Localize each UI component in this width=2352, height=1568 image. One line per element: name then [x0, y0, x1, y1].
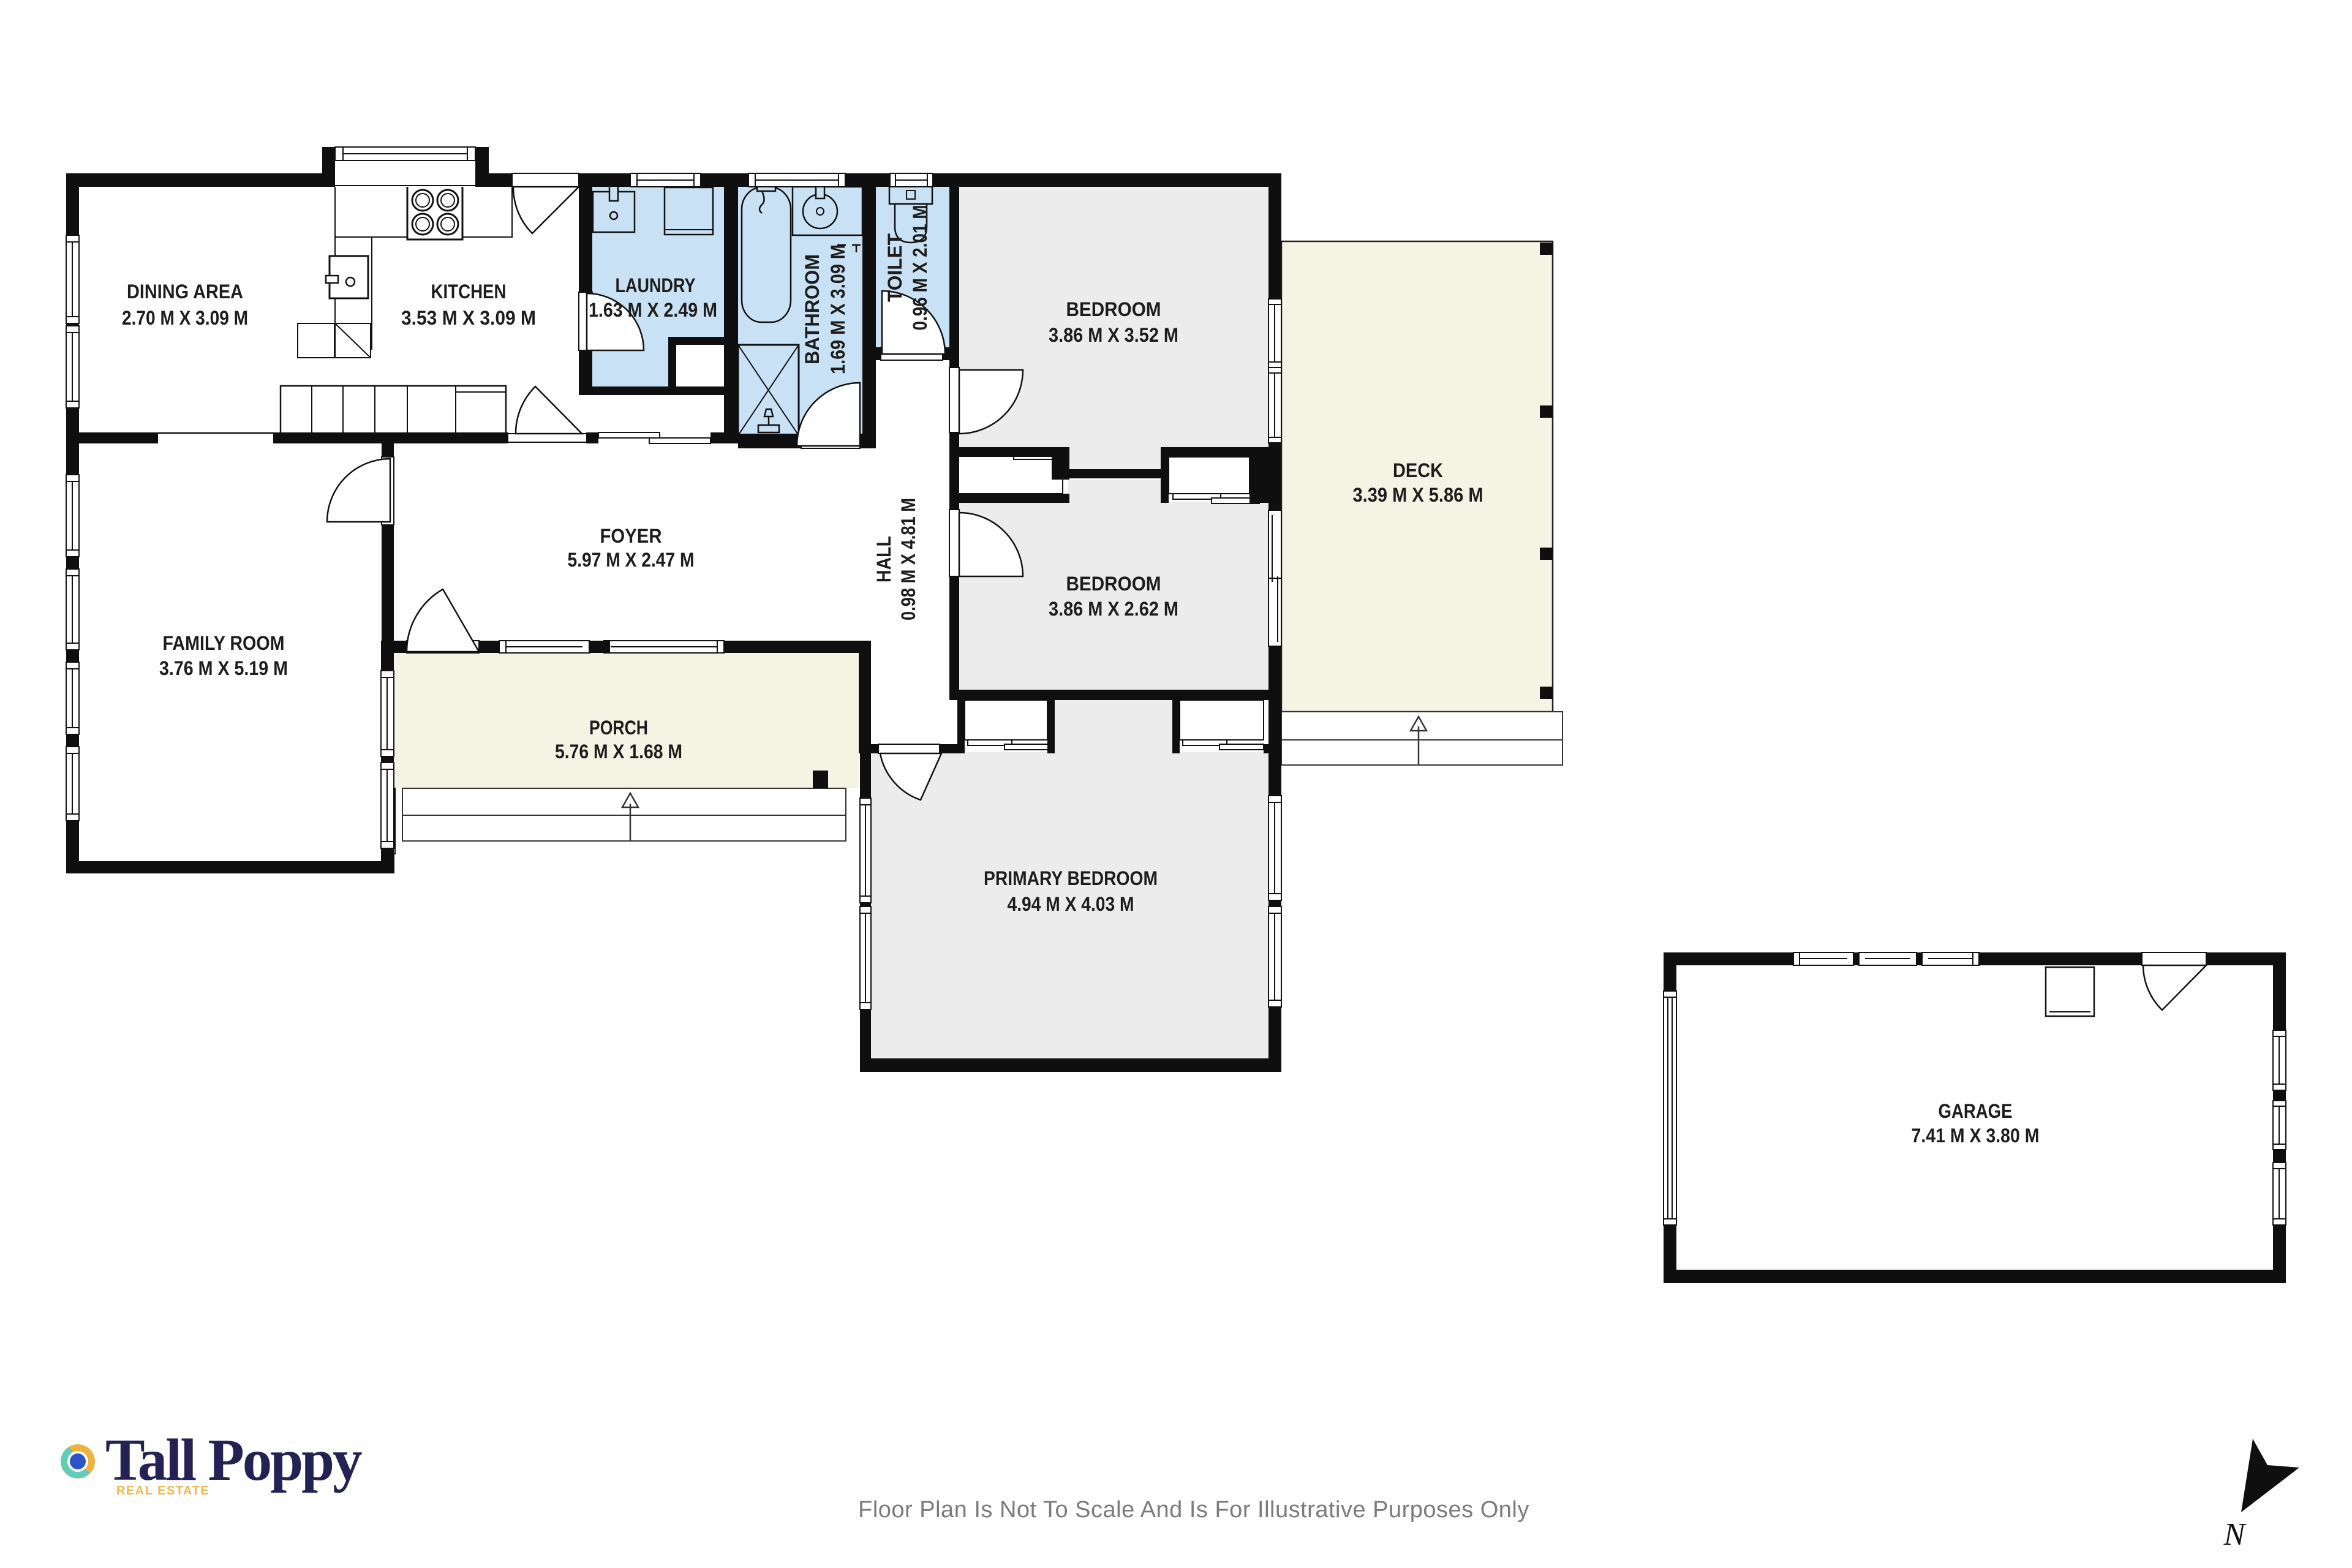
svg-text:HALL: HALL	[873, 536, 895, 582]
svg-text:BEDROOM: BEDROOM	[1066, 573, 1161, 595]
svg-text:N: N	[2223, 1517, 2247, 1552]
svg-text:BATHROOM: BATHROOM	[801, 254, 823, 364]
svg-text:5.97 M X 2.47 M: 5.97 M X 2.47 M	[568, 549, 695, 571]
svg-text:GARAGE: GARAGE	[1939, 1100, 2013, 1122]
svg-text:3.86 M X 3.52 M: 3.86 M X 3.52 M	[1049, 324, 1178, 346]
svg-text:4.94 M X 4.03 M: 4.94 M X 4.03 M	[1008, 893, 1134, 915]
svg-text:REAL ESTATE: REAL ESTATE	[116, 1484, 209, 1498]
svg-text:DINING AREA: DINING AREA	[127, 281, 243, 303]
svg-text:0.96 M X 2.01 M: 0.96 M X 2.01 M	[909, 205, 931, 331]
svg-text:PORCH: PORCH	[589, 717, 648, 739]
svg-text:DECK: DECK	[1393, 459, 1443, 481]
svg-text:0.98 M X 4.81 M: 0.98 M X 4.81 M	[897, 498, 919, 620]
svg-text:KITCHEN: KITCHEN	[431, 281, 507, 303]
svg-text:LAUNDRY: LAUNDRY	[616, 274, 696, 296]
svg-text:FAMILY ROOM: FAMILY ROOM	[163, 632, 285, 654]
svg-text:5.76 M X 1.68 M: 5.76 M X 1.68 M	[555, 741, 682, 763]
svg-text:3.86 M X 2.62 M: 3.86 M X 2.62 M	[1049, 598, 1178, 620]
svg-text:BEDROOM: BEDROOM	[1066, 298, 1161, 320]
svg-text:7.41 M X 3.80 M: 7.41 M X 3.80 M	[1912, 1125, 2040, 1147]
svg-text:3.53 M X 3.09 M: 3.53 M X 3.09 M	[401, 307, 536, 329]
svg-text:PRIMARY BEDROOM: PRIMARY BEDROOM	[984, 867, 1158, 889]
svg-text:Tall Poppy: Tall Poppy	[105, 1427, 362, 1493]
svg-text:TOILET: TOILET	[884, 233, 906, 302]
svg-text:1.69 M X 3.09 M: 1.69 M X 3.09 M	[827, 244, 849, 374]
svg-text:FOYER: FOYER	[600, 525, 662, 547]
svg-text:3.76 M X 5.19 M: 3.76 M X 5.19 M	[159, 657, 288, 679]
svg-text:Floor Plan Is Not To Scale And: Floor Plan Is Not To Scale And Is For Il…	[858, 1497, 1529, 1523]
svg-text:3.39 M X 5.86 M: 3.39 M X 5.86 M	[1353, 484, 1483, 506]
svg-text:2.70 M X 3.09 M: 2.70 M X 3.09 M	[122, 307, 248, 329]
svg-text:1.63 M X 2.49 M: 1.63 M X 2.49 M	[589, 299, 717, 321]
